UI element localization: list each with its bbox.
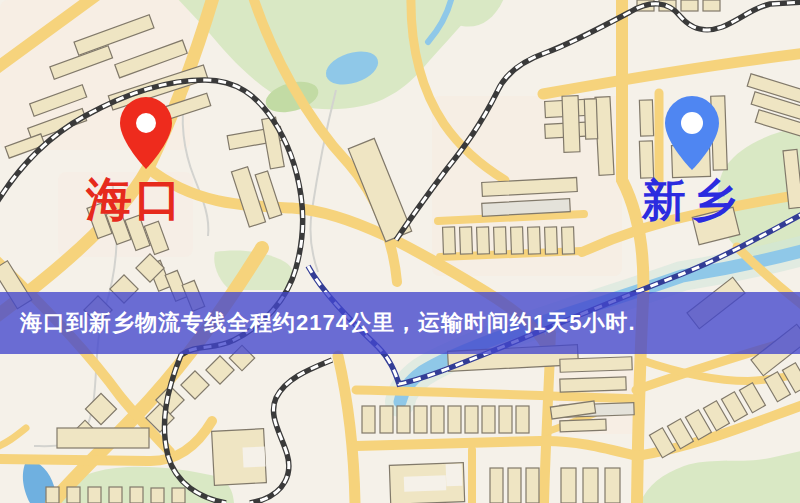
origin-pin-hole [136,113,156,133]
destination-pin-hole [681,112,703,134]
map-artwork [0,0,800,503]
route-info-text: 海口到新乡物流专线全程约2174公里，运输时间约1天5小时. [20,308,636,338]
origin-city-label: 海口 [86,176,184,222]
destination-city-label: 新乡 [642,178,742,222]
route-info-banner: 海口到新乡物流专线全程约2174公里，运输时间约1天5小时. [0,292,800,354]
map-canvas[interactable]: 海口 新乡 海口到新乡物流专线全程约2174公里，运输时间约1天5小时. [0,0,800,503]
